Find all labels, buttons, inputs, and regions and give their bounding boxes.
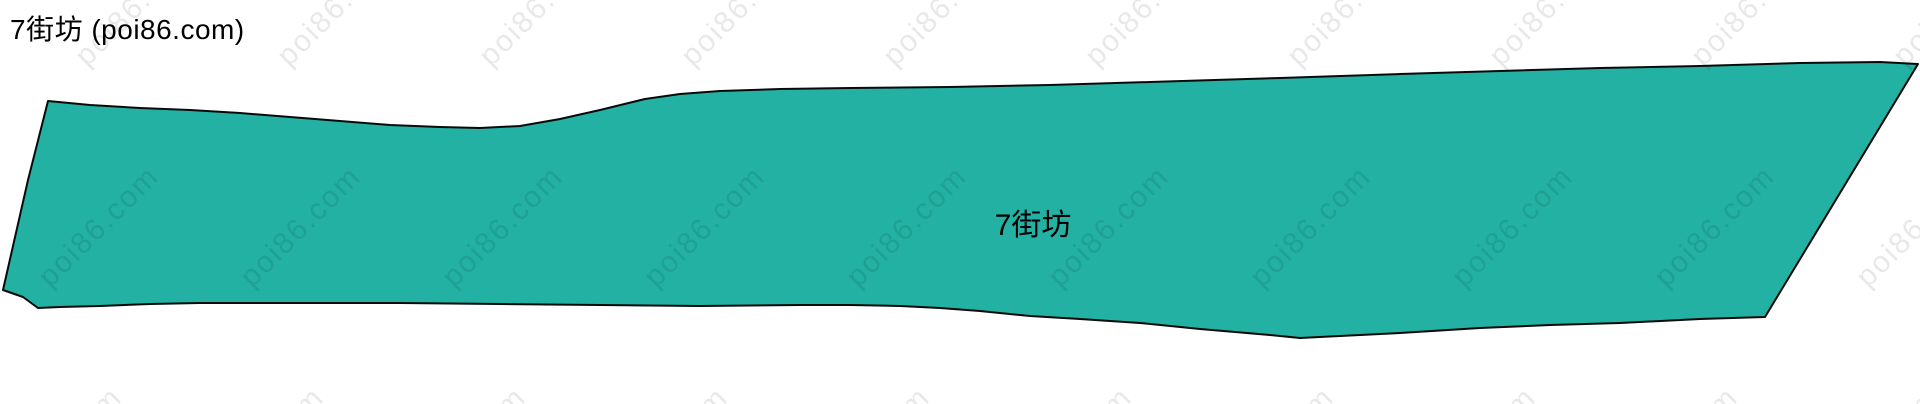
region-label: 7街坊	[995, 200, 1072, 244]
map-canvas: poi86.compoi86.compoi86.compoi86.compoi8…	[0, 0, 1920, 404]
region-polygon[interactable]	[3, 62, 1918, 338]
region-polygon-svg	[0, 0, 1920, 404]
page-title: 7街坊 (poi86.com)	[10, 8, 245, 48]
